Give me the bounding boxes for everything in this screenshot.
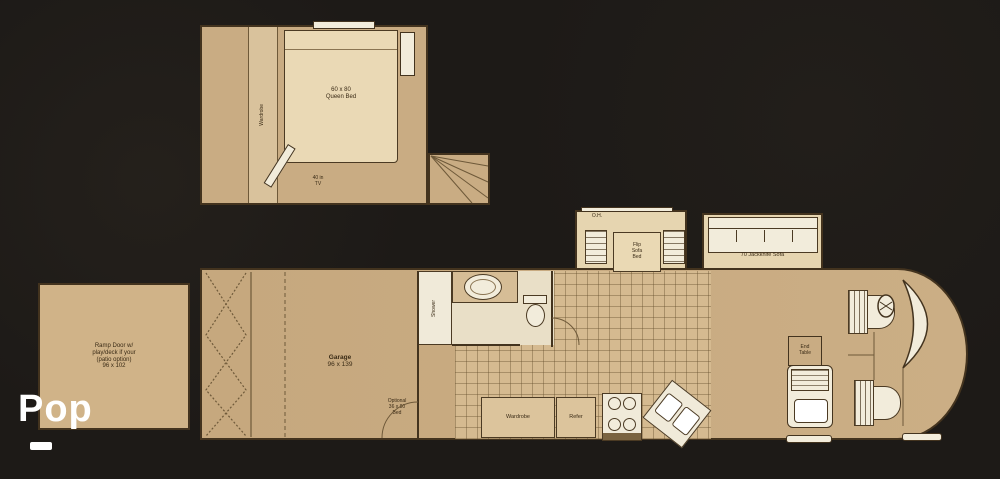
watermark-underscore bbox=[30, 442, 52, 450]
sofa-back-line bbox=[709, 228, 817, 229]
entry-step-marker bbox=[902, 433, 942, 441]
watermark-title: Pop bbox=[18, 388, 93, 431]
burner bbox=[623, 397, 636, 410]
bedroom-step-landing bbox=[428, 153, 490, 205]
tv-label: 40 in TV bbox=[300, 176, 336, 188]
queen-bed: 60 x 80 Queen Bed bbox=[284, 30, 398, 163]
passenger-seat bbox=[854, 380, 901, 426]
burner bbox=[623, 418, 636, 431]
chair-cushion bbox=[794, 399, 828, 423]
dinette-bench-left bbox=[585, 230, 607, 264]
seat-backrest bbox=[854, 380, 874, 426]
overhead-cabinet-label: O.H. bbox=[588, 214, 606, 220]
driver-seat bbox=[848, 290, 895, 334]
bedroom-window bbox=[313, 21, 375, 29]
jackknife-sofa bbox=[708, 217, 818, 253]
seat-cushion bbox=[874, 386, 901, 420]
refrigerator: Refer bbox=[556, 397, 596, 438]
sofa-cushion-divider bbox=[764, 230, 765, 242]
toilet-bowl bbox=[526, 304, 545, 327]
wardrobe-cabinet: Wardrobe bbox=[481, 397, 555, 438]
range-oven bbox=[602, 393, 642, 441]
sofa-cushion-divider bbox=[736, 230, 737, 242]
seat-backrest bbox=[848, 290, 868, 334]
sofa-label: 70 Jackknife Sofa bbox=[705, 252, 820, 258]
bed-pillow-line bbox=[285, 49, 397, 50]
seat-cushion bbox=[868, 295, 895, 329]
barrel-chair bbox=[787, 365, 833, 428]
dinette-bench-right bbox=[663, 230, 685, 264]
bed-label: 60 x 80 Queen Bed bbox=[285, 87, 397, 101]
toilet-tank bbox=[523, 295, 547, 304]
chair-backrest bbox=[791, 369, 829, 391]
flip-sofa-bed: Flip Sofa Bed bbox=[613, 232, 661, 272]
sofa-cushion-divider bbox=[792, 230, 793, 242]
shower-label: Shower bbox=[432, 300, 438, 317]
burner bbox=[608, 397, 621, 410]
bath-sink bbox=[464, 274, 502, 300]
nightstand bbox=[400, 32, 415, 76]
dinette-slide-window bbox=[581, 207, 673, 212]
end-table: End Table bbox=[788, 336, 822, 366]
burner bbox=[608, 418, 621, 431]
wardrobe-label: Wardrobe bbox=[260, 104, 266, 126]
oven-strip bbox=[603, 433, 641, 440]
entry-step-marker bbox=[786, 435, 832, 443]
shower-stall: Shower bbox=[418, 271, 452, 345]
floorplan-canvas: Wardrobe 60 x 80 Queen Bed 40 in TV Ramp… bbox=[0, 0, 1000, 479]
garage-label: Garage 96 x 139 bbox=[303, 354, 377, 369]
optional-bed-label: Optional 36 x 80 Bed bbox=[374, 399, 420, 416]
